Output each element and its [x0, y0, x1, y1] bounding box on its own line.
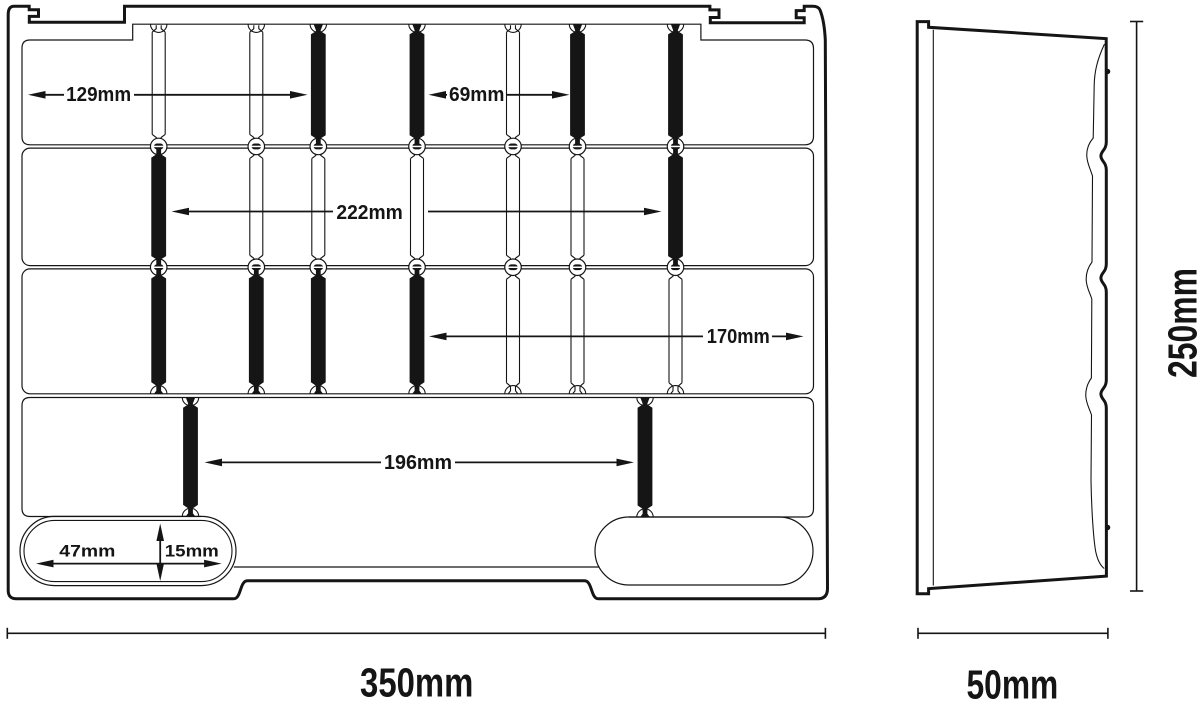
- svg-text:170mm: 170mm: [707, 325, 770, 348]
- svg-text:196mm: 196mm: [384, 451, 452, 474]
- svg-text:222mm: 222mm: [336, 201, 403, 224]
- svg-text:47mm: 47mm: [59, 542, 115, 561]
- svg-text:50mm: 50mm: [967, 662, 1059, 703]
- svg-text:350mm: 350mm: [360, 659, 473, 703]
- svg-text:129mm: 129mm: [66, 83, 131, 106]
- svg-text:250mm: 250mm: [1160, 268, 1200, 378]
- svg-text:15mm: 15mm: [165, 542, 219, 561]
- svg-text:69mm: 69mm: [449, 83, 505, 106]
